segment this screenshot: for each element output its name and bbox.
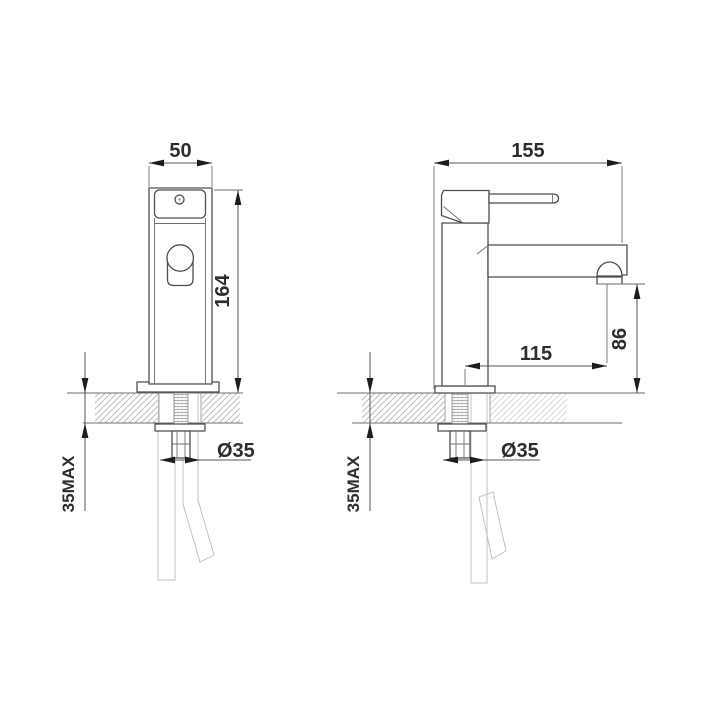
fixing-nut <box>172 431 190 458</box>
arrow-down <box>367 378 374 393</box>
lever-handle <box>489 194 559 203</box>
countertop-hatch-right <box>490 394 567 423</box>
arrow-up <box>367 423 374 438</box>
arrow-bottom <box>235 378 242 393</box>
arrow-right <box>470 457 485 464</box>
dimension-deck-35max-front: 35MAX <box>59 352 88 512</box>
aerator <box>597 262 622 284</box>
backnut-washer <box>438 424 486 431</box>
side-view-countertop <box>337 393 645 423</box>
side-hose-bent <box>479 492 506 559</box>
arrow-right <box>592 363 607 370</box>
arrow-up <box>82 423 89 438</box>
base-plate <box>435 386 495 393</box>
front-view-fixing <box>155 393 205 458</box>
front-view-countertop <box>67 393 243 423</box>
arrow-right <box>197 160 212 167</box>
deck-max-label: 35MAX <box>344 455 363 512</box>
arrow-top <box>235 190 242 205</box>
hole-label: Ø35 <box>217 440 255 462</box>
reach-label: 115 <box>520 343 552 365</box>
faucet-body <box>442 223 488 386</box>
fixing-nut <box>450 431 470 458</box>
arrow-left <box>434 160 449 167</box>
countertop-hatch-left <box>95 394 158 423</box>
front-view: 50 164 35MAX Ø35 <box>59 140 255 580</box>
hole-label: Ø35 <box>501 440 539 462</box>
arrow-left <box>160 457 175 464</box>
lever-knob <box>167 245 193 271</box>
arrow-top <box>634 284 641 299</box>
arrow-right <box>607 160 622 167</box>
aerator-screw-dot <box>179 199 181 201</box>
dimension-outlet-height-86: 86 <box>597 284 645 393</box>
countertop-hatch-right <box>202 394 240 423</box>
dimension-width-50: 50 <box>149 140 212 187</box>
depth-label: 155 <box>511 140 544 162</box>
arrow-down <box>82 378 89 393</box>
arrow-bottom <box>634 378 641 393</box>
height-label: 164 <box>212 273 234 307</box>
front-hose-straight <box>158 393 175 580</box>
countertop-hatch-left <box>362 394 445 423</box>
backnut-washer <box>155 424 205 431</box>
dimension-deck-35max-side: 35MAX <box>344 352 373 512</box>
deck-max-label: 35MAX <box>59 455 78 512</box>
front-view-faucet <box>137 188 219 392</box>
faucet-technical-drawing: 50 164 35MAX Ø35 <box>0 0 720 720</box>
arrow-left <box>149 160 164 167</box>
drawing-canvas: 50 164 35MAX Ø35 <box>0 0 720 720</box>
cartridge-head <box>442 191 490 224</box>
dimension-height-164: 164 <box>212 190 243 393</box>
width-label: 50 <box>169 140 191 162</box>
outlet-height-label: 86 <box>609 328 631 350</box>
side-view: 155 115 86 35MAX <box>337 140 645 583</box>
side-hose-straight <box>471 393 487 583</box>
